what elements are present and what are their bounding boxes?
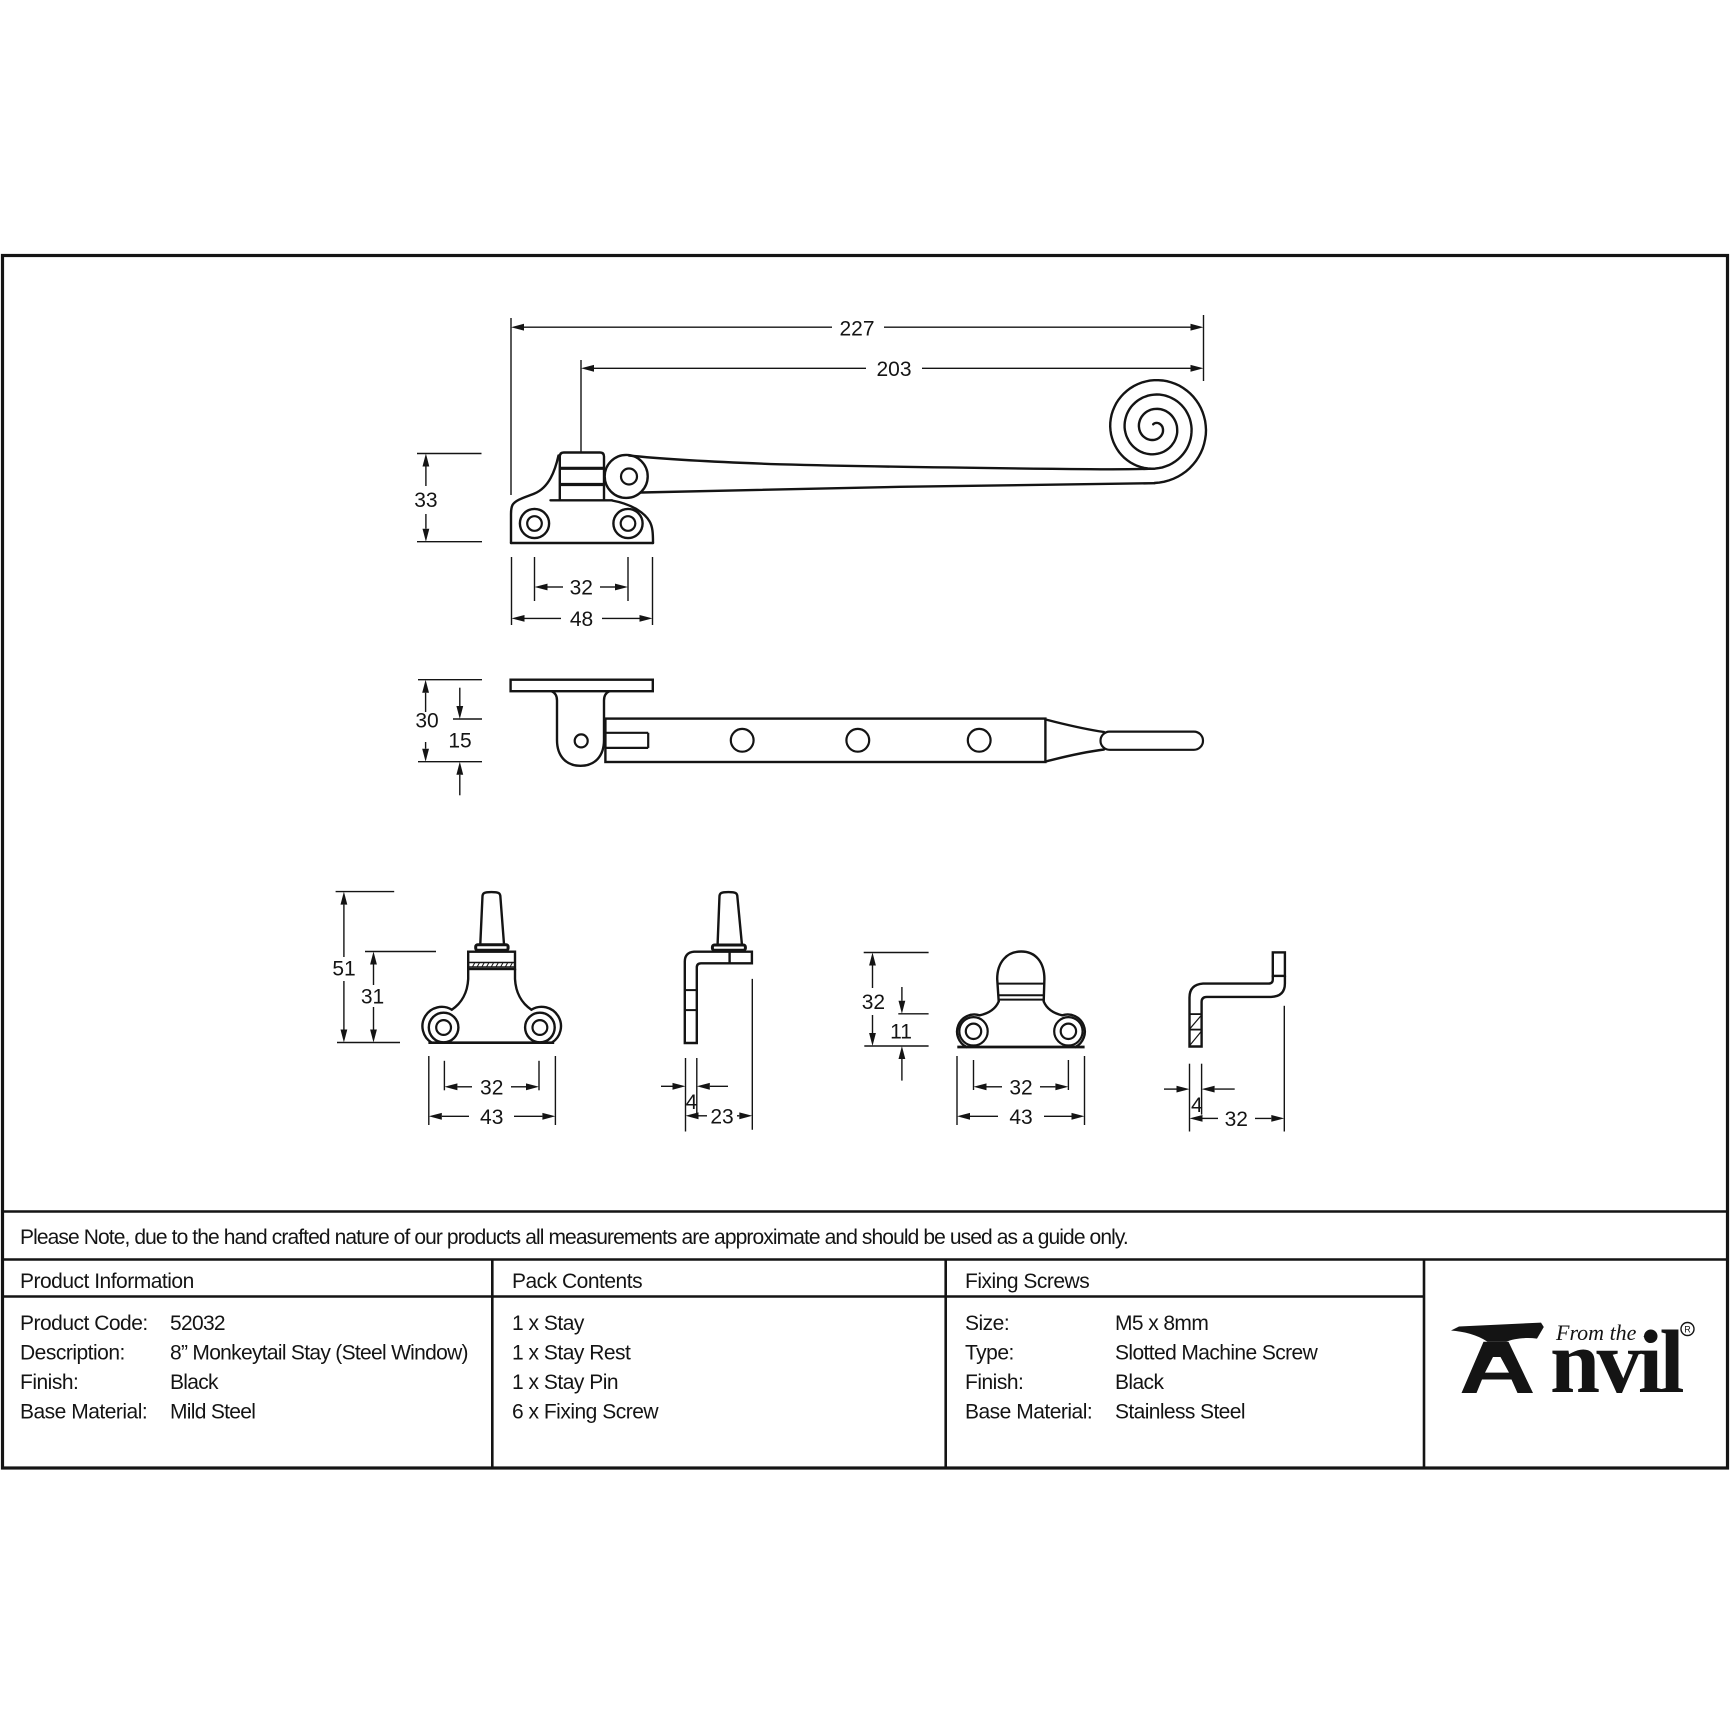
svg-text:32: 32	[480, 1076, 503, 1099]
svg-text:Base Material:: Base Material:	[965, 1401, 1092, 1424]
svg-text:Description:: Description:	[20, 1342, 125, 1365]
svg-text:4: 4	[1191, 1094, 1203, 1117]
svg-text:1 x Stay Pin: 1 x Stay Pin	[512, 1371, 618, 1394]
svg-text:15: 15	[448, 730, 471, 753]
svg-text:Black: Black	[170, 1371, 219, 1394]
svg-text:1 x Stay Rest: 1 x Stay Rest	[512, 1342, 631, 1365]
svg-text:43: 43	[480, 1106, 503, 1129]
svg-text:8” Monkeytail Stay (Steel Wind: 8” Monkeytail Stay (Steel Window)	[170, 1342, 468, 1365]
svg-text:6 x Fixing Screw: 6 x Fixing Screw	[512, 1401, 659, 1424]
svg-text:Please Note, due to the hand c: Please Note, due to the hand crafted nat…	[20, 1226, 1128, 1249]
svg-text:32: 32	[1009, 1076, 1032, 1099]
svg-text:Stainless Steel: Stainless Steel	[1115, 1401, 1245, 1424]
svg-text:Pack Contents: Pack Contents	[512, 1270, 642, 1293]
svg-text:1 x Stay: 1 x Stay	[512, 1312, 585, 1335]
svg-text:32: 32	[570, 577, 593, 600]
svg-text:Black: Black	[1115, 1371, 1164, 1394]
svg-text:Mild Steel: Mild Steel	[170, 1401, 255, 1424]
svg-text:Slotted Machine Screw: Slotted Machine Screw	[1115, 1342, 1319, 1365]
svg-text:M5 x 8mm: M5 x 8mm	[1115, 1312, 1208, 1335]
svg-text:From the: From the	[1555, 1320, 1637, 1345]
svg-text:30: 30	[415, 710, 438, 733]
svg-text:Product Code:: Product Code:	[20, 1312, 148, 1335]
svg-text:32: 32	[1225, 1108, 1248, 1131]
svg-text:52032: 52032	[170, 1312, 225, 1335]
svg-text:43: 43	[1009, 1106, 1032, 1129]
svg-text:203: 203	[876, 358, 911, 381]
svg-text:33: 33	[414, 489, 437, 512]
svg-text:Fixing Screws: Fixing Screws	[965, 1270, 1089, 1293]
svg-text:Finish:: Finish:	[965, 1371, 1023, 1394]
svg-text:23: 23	[710, 1105, 733, 1128]
svg-text:Finish:: Finish:	[20, 1371, 78, 1394]
svg-text:Product Information: Product Information	[20, 1270, 194, 1293]
svg-text:227: 227	[839, 318, 874, 341]
svg-text:11: 11	[890, 1021, 912, 1044]
svg-text:48: 48	[570, 608, 593, 631]
svg-text:31: 31	[361, 986, 384, 1009]
svg-text:4: 4	[686, 1091, 698, 1114]
svg-text:Type:: Type:	[965, 1342, 1014, 1365]
svg-text:Base Material:: Base Material:	[20, 1401, 147, 1424]
svg-text:32: 32	[862, 991, 885, 1014]
svg-text:R: R	[1684, 1325, 1691, 1335]
svg-text:Size:: Size:	[965, 1312, 1009, 1335]
svg-text:51: 51	[332, 958, 355, 981]
